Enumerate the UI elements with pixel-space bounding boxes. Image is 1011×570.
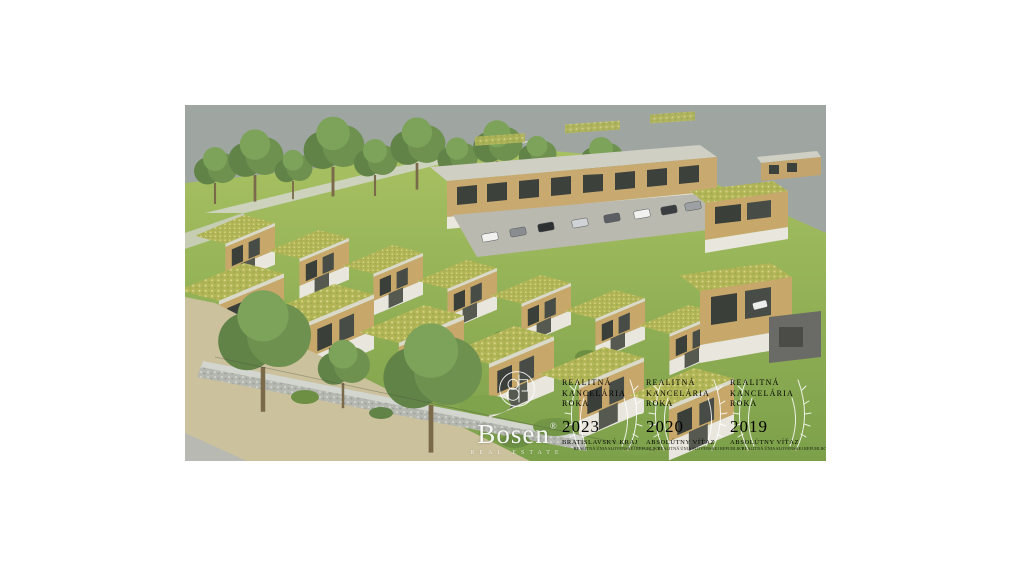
award-title-line: KANCELÁRIA (646, 389, 730, 400)
award-badge-2019: REALITNÁ KANCELÁRIA ROKA 2019 ABSOLÚTNY … (730, 366, 814, 460)
award-title-line: ROKA (646, 399, 730, 410)
award-title-line: KANCELÁRIA (730, 389, 814, 400)
award-organizer: REALITNÁ ÚNIA SLOVENSKEJ REPUBLIKY (742, 447, 802, 452)
architectural-rendering: Bosen® REAL ESTATE REALITNÁ KANCELÁRIA R… (185, 105, 826, 461)
award-year: 2023 (562, 418, 646, 436)
award-organizer: REALITNÁ ÚNIA SLOVENSKEJ REPUBLIKY (574, 447, 634, 452)
award-title-line: REALITNÁ (646, 378, 730, 389)
award-organizer: REALITNÁ ÚNIA SLOVENSKEJ REPUBLIKY (658, 447, 718, 452)
award-title-line: ROKA (730, 399, 814, 410)
award-title-line: REALITNÁ (730, 378, 814, 389)
award-year: 2019 (730, 418, 814, 436)
award-year: 2020 (646, 418, 730, 436)
award-subtitle: BRATISLAVSKÝ KRAJ (562, 439, 646, 447)
award-badge-2023: REALITNÁ KANCELÁRIA ROKA 2023 BRATISLAVS… (562, 366, 646, 460)
registered-mark: ® (550, 421, 557, 431)
page: Bosen® REAL ESTATE REALITNÁ KANCELÁRIA R… (0, 0, 1011, 570)
award-title-line: KANCELÁRIA (562, 389, 646, 400)
award-title-line: REALITNÁ (562, 378, 646, 389)
award-title-line: ROKA (562, 399, 646, 410)
award-badge-2020: REALITNÁ KANCELÁRIA ROKA 2020 ABSOLÚTNY … (646, 366, 730, 460)
bosen-monogram-icon (497, 369, 537, 409)
award-subtitle: ABSOLÚTNY VÍŤAZ (730, 439, 814, 447)
award-subtitle: ABSOLÚTNY VÍŤAZ (646, 439, 730, 447)
